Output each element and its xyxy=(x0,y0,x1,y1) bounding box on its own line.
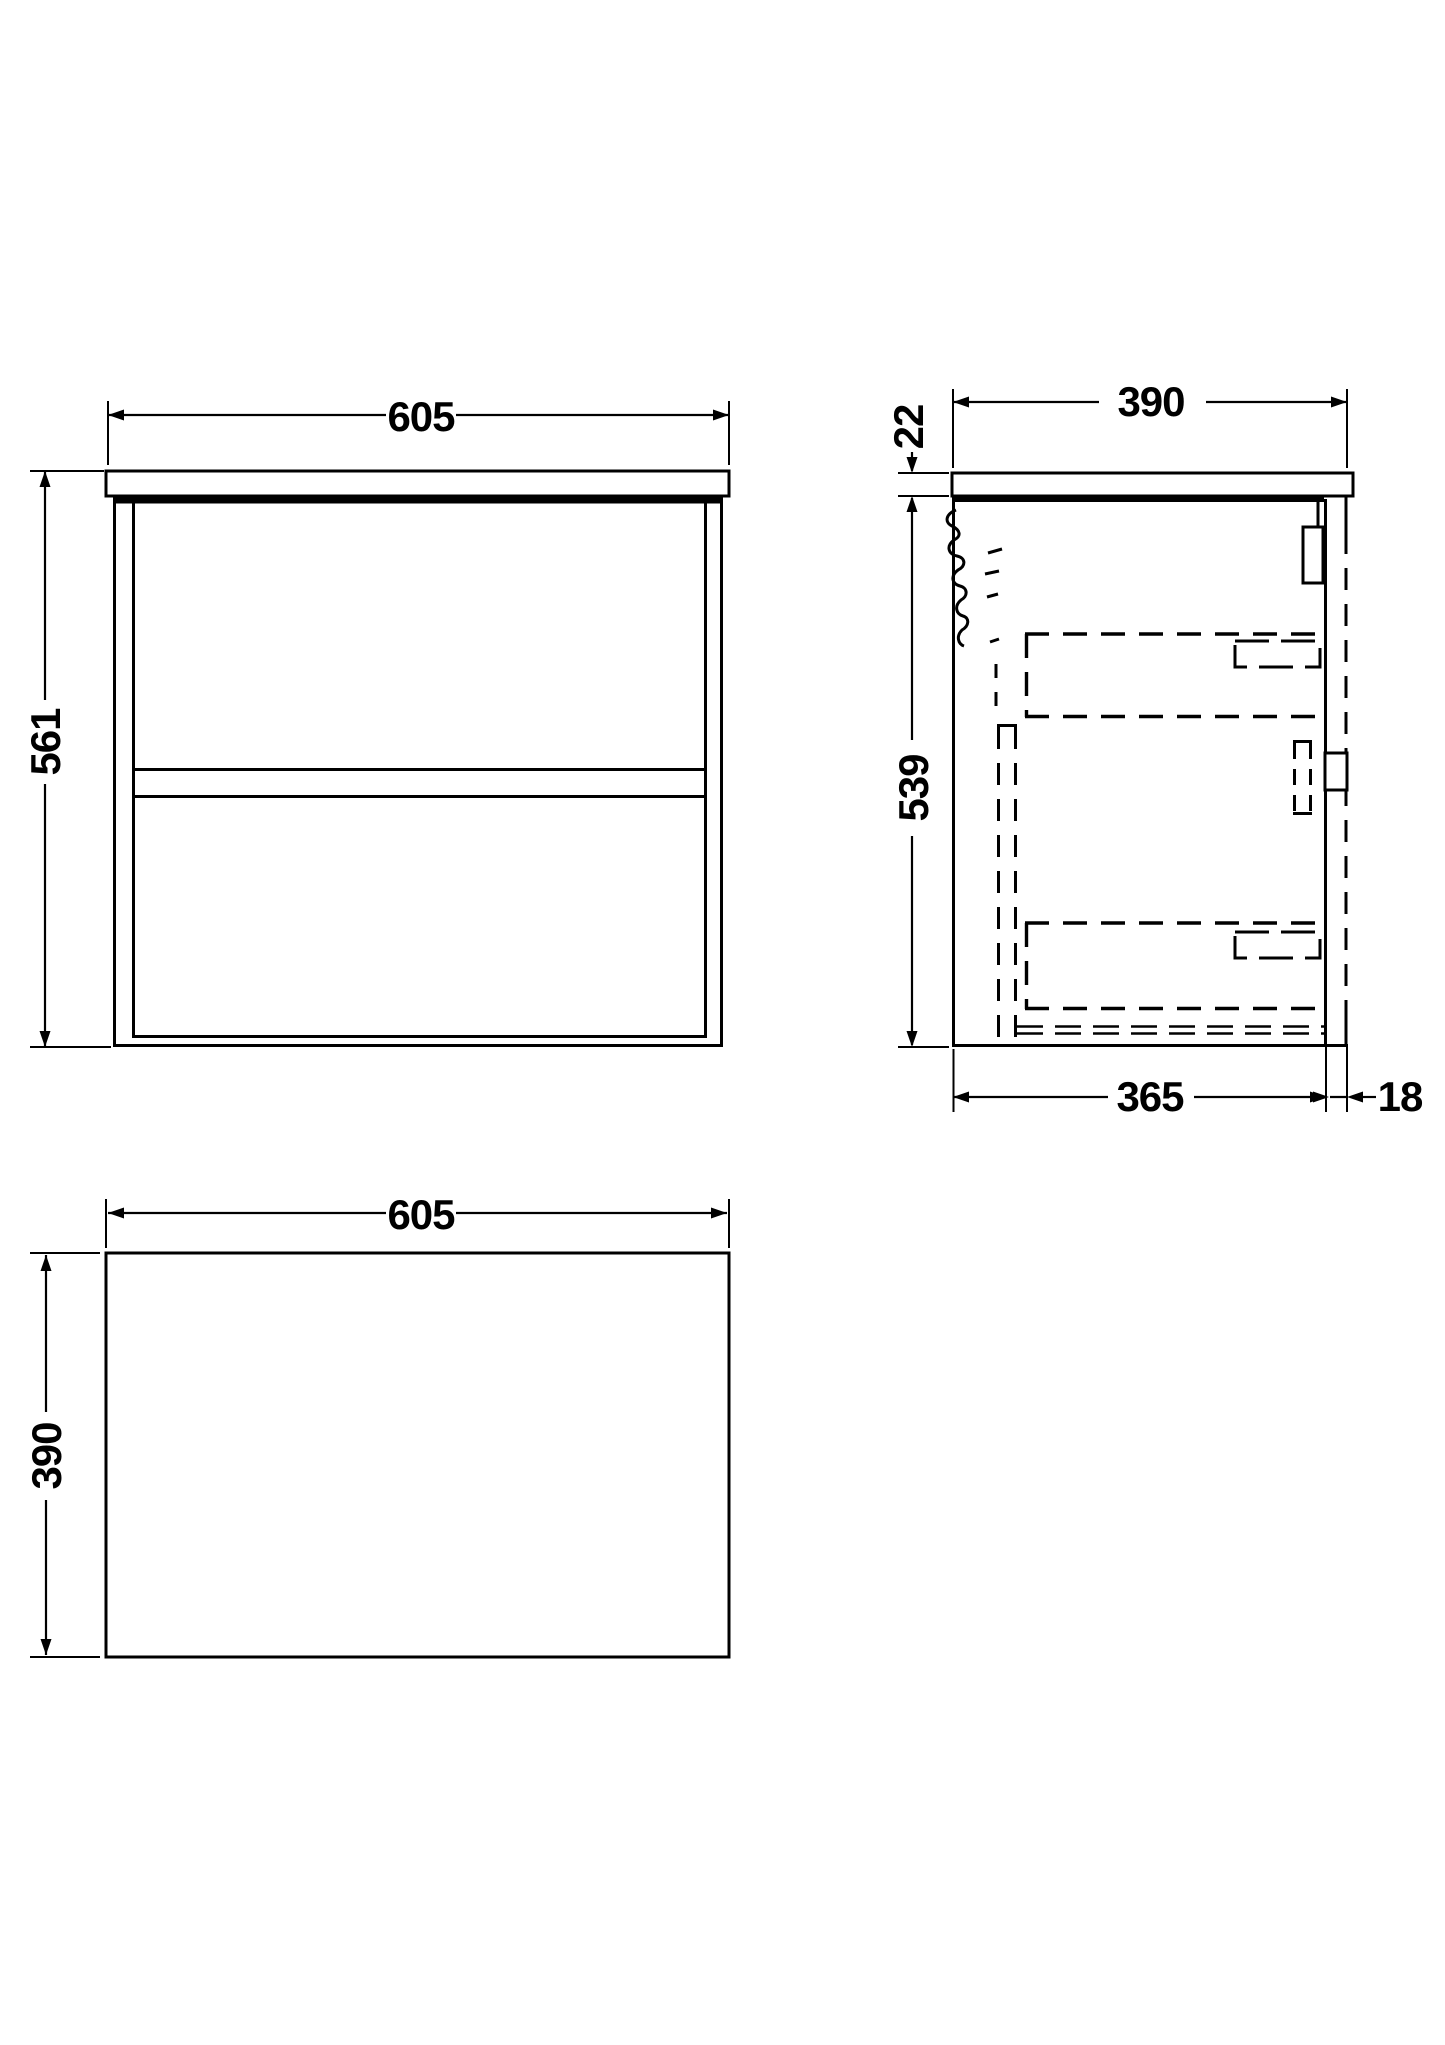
side-bottom-dimension-group: 365 18 xyxy=(953,1047,1423,1120)
plan-worktop-outline xyxy=(106,1253,729,1657)
arrowhead xyxy=(953,1092,969,1103)
arrowhead xyxy=(907,1031,918,1047)
arrowhead xyxy=(40,471,51,487)
hidden-drawer-runner-upper xyxy=(1235,641,1320,667)
side-worktop-thickness-dimension: 22 xyxy=(885,405,932,450)
side-depth-dimension-group: 390 xyxy=(953,378,1347,468)
front-height-dimension: 561 xyxy=(22,708,69,776)
hidden-drawer-runner-lower xyxy=(1235,932,1320,958)
front-width-dimension: 605 xyxy=(387,393,455,440)
side-front-top-notch xyxy=(1318,500,1325,527)
side-worktop-thickness-dimension-group: 22 xyxy=(885,405,949,512)
arrowhead xyxy=(711,1208,727,1219)
side-cabinet-height-dimension: 539 xyxy=(890,754,937,821)
hidden-drawer-box-lower xyxy=(1025,923,1324,1009)
side-runner-bracket xyxy=(1303,527,1323,583)
hidden-vertical-element-left xyxy=(997,726,1017,1046)
plan-depth-dimension: 390 xyxy=(23,1422,70,1489)
arrowhead xyxy=(713,410,729,421)
arrowhead xyxy=(41,1639,52,1655)
side-cabinet-depth-dimension: 365 xyxy=(1116,1073,1184,1120)
plan-view: 605 390 xyxy=(23,1191,729,1657)
front-height-dimension-group: 561 xyxy=(22,471,111,1047)
front-width-dimension-group: 605 xyxy=(108,393,729,465)
wall-bracket-squiggle xyxy=(947,510,968,646)
arrowhead xyxy=(953,397,969,408)
front-worktop-outline xyxy=(106,471,729,496)
arrowhead xyxy=(108,410,124,421)
plan-depth-dimension-group: 390 xyxy=(23,1253,100,1657)
arrowhead xyxy=(108,1208,124,1219)
arrowhead xyxy=(907,457,918,473)
side-section-view: 390 22 539 xyxy=(885,378,1423,1120)
vanity-unit-drawing: 605 561 xyxy=(0,0,1445,2045)
front-elevation-view: 605 561 xyxy=(22,393,729,1047)
arrowhead xyxy=(41,1255,52,1271)
arrowhead xyxy=(1347,1092,1363,1103)
arrowhead xyxy=(40,1031,51,1047)
plan-width-dimension: 605 xyxy=(387,1191,455,1238)
side-depth-dimension: 390 xyxy=(1117,378,1184,425)
hidden-drawer-box-upper xyxy=(1025,634,1324,717)
side-cabinet-height-dimension-group: 539 xyxy=(890,498,949,1047)
side-worktop-outline xyxy=(952,473,1353,496)
plan-width-dimension-group: 605 xyxy=(106,1191,729,1248)
side-drawer-gap-block xyxy=(1325,753,1347,790)
arrowhead xyxy=(1331,397,1347,408)
wall-bracket-detail-dashes xyxy=(985,549,1002,706)
hidden-vertical-element-right xyxy=(1293,742,1312,814)
technical-drawing-page: 605 561 xyxy=(0,0,1445,2045)
side-front-panel-dimension: 18 xyxy=(1378,1073,1423,1120)
